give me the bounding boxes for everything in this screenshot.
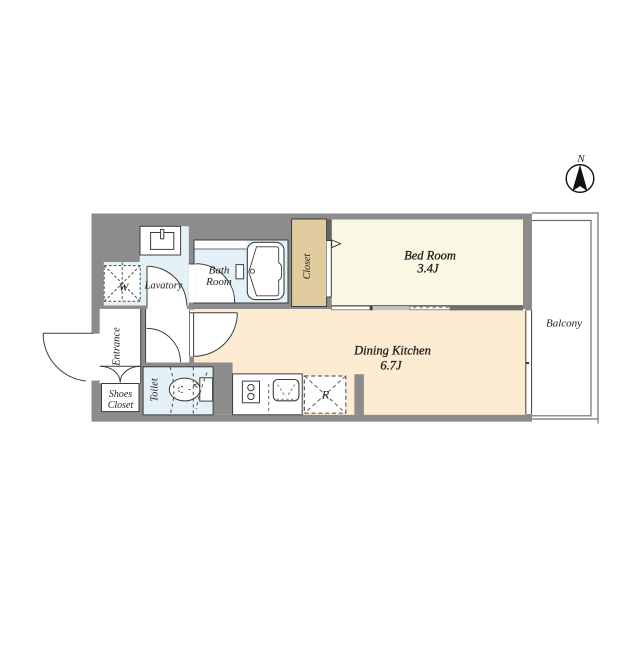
svg-text:Dining Kitchen: Dining Kitchen — [353, 344, 431, 358]
svg-text:W: W — [119, 282, 130, 294]
svg-text:Lavatory: Lavatory — [144, 281, 183, 292]
svg-text:Shoes: Shoes — [109, 389, 132, 400]
svg-text:N: N — [576, 153, 585, 165]
svg-text:Bath: Bath — [209, 265, 230, 277]
svg-text:Toilet: Toilet — [150, 377, 161, 402]
svg-text:R: R — [321, 388, 330, 402]
svg-text:Closet: Closet — [302, 254, 313, 280]
svg-text:Room: Room — [205, 276, 232, 288]
svg-text:6.7J: 6.7J — [380, 359, 403, 373]
svg-text:3.4J: 3.4J — [416, 261, 440, 275]
svg-text:Balcony: Balcony — [546, 318, 582, 330]
svg-text:Entrance: Entrance — [112, 327, 123, 367]
svg-text:Closet: Closet — [108, 400, 134, 411]
